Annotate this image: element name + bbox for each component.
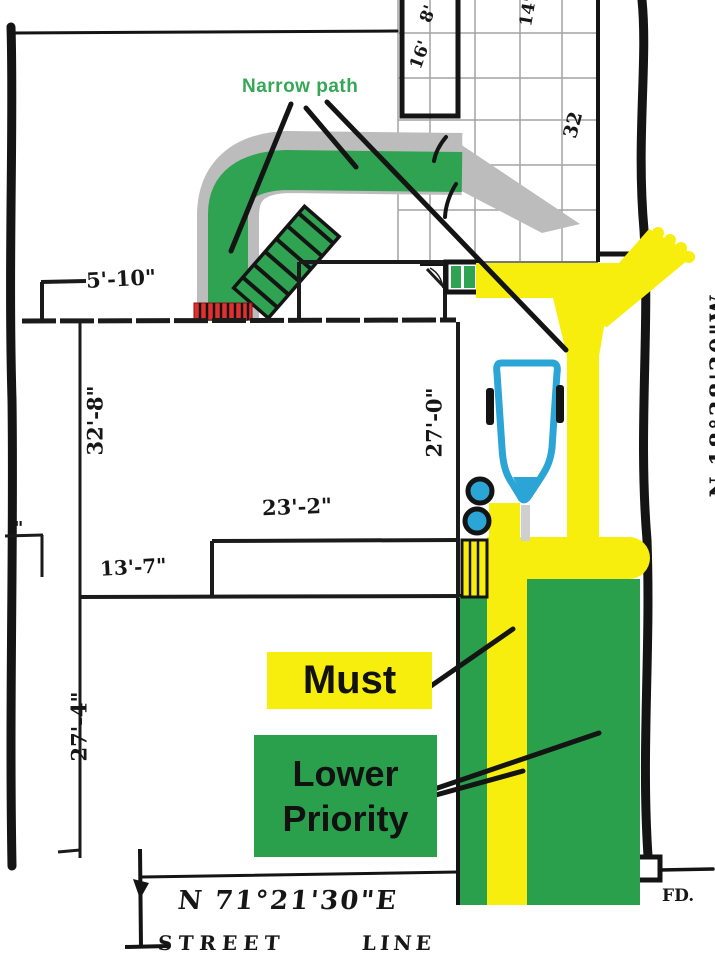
line-word: LINE: [361, 931, 436, 955]
dim-house-rear-width: 23'-2": [262, 493, 333, 520]
fd-monument: [637, 857, 660, 880]
bearing-street-line: N 71°21'30"E: [176, 886, 399, 916]
narrow-path-label: Narrow path: [242, 76, 358, 98]
entry-steps-red: [194, 303, 252, 320]
fd-label: FD.: [662, 886, 694, 906]
must-label-text: Must: [303, 658, 396, 703]
lower-priority-label: Lower Priority: [254, 735, 437, 857]
lower-priority-line1: Lower: [292, 751, 398, 796]
dim-house-rear-offset: 13'-7": [99, 553, 167, 580]
dim-house-side-left: 32'-8": [82, 386, 107, 456]
must-label: Must: [267, 652, 432, 709]
lower-priority-green-area: [458, 579, 640, 905]
dim-front-setback: 5'-10": [85, 264, 156, 293]
porch-outline: [299, 262, 445, 322]
dim-house-side-right: 27'-0": [421, 388, 446, 458]
yellow-steps: [462, 540, 487, 597]
lower-priority-line2: Priority: [282, 796, 408, 841]
dim-left-tick: ": [14, 518, 23, 539]
green-door: [446, 262, 479, 292]
street-word: STREET: [157, 931, 286, 955]
annotated-site-plan: Narrow path Must Lower Priority 5'-10" 3…: [0, 0, 715, 967]
dim-rear-yard-left: 27'-4": [66, 692, 91, 762]
bearing-side-lot-line: N.18°38'30"W: [705, 294, 715, 498]
blue-valves: [465, 479, 492, 533]
